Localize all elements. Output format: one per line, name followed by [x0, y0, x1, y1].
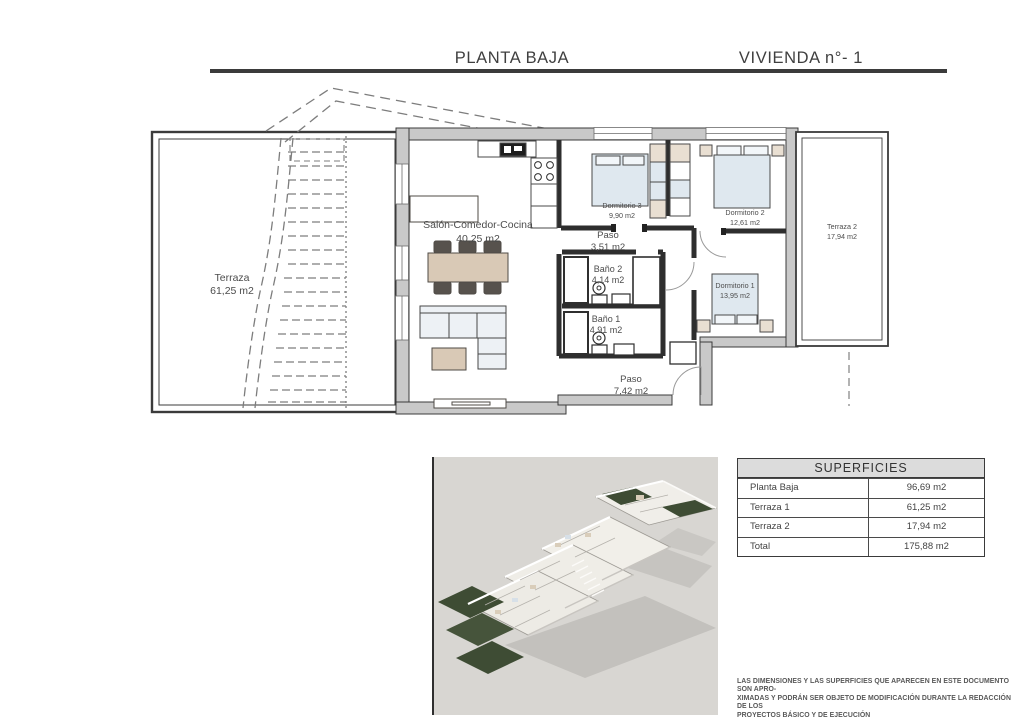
stove-icon	[531, 158, 557, 184]
bathroom-fixtures	[564, 257, 696, 364]
room-label-paso-2: Paso 7,42 m2	[614, 374, 648, 398]
bed-dormitorio-2	[670, 144, 784, 216]
room-name: Baño 2	[592, 264, 625, 275]
row-value: 61,25 m2	[869, 499, 984, 518]
disclaimer-line: PROYECTOS BÁSICO Y DE EJECUCIÓN	[737, 712, 1015, 720]
row-label: Total	[738, 538, 869, 557]
room-name: Paso	[591, 230, 625, 242]
room-area: 7,42 m2	[614, 386, 648, 398]
hall-closet	[670, 342, 696, 364]
superficies-table-title: SUPERFICIES	[738, 459, 984, 478]
dining-table	[428, 253, 508, 282]
disclaimer-line: XIMADAS Y PODRÁN SER OBJETO DE MODIFICAC…	[737, 695, 1015, 712]
room-name: Terraza	[210, 272, 254, 285]
kitchen-fixtures	[478, 141, 557, 228]
sink-bano-1	[614, 344, 634, 355]
row-value: 96,69 m2	[869, 479, 984, 498]
kitchen-sink-icon	[500, 143, 526, 156]
room-area: 9,90 m2	[602, 211, 641, 221]
disclaimer-text: LAS DIMENSIONES Y LAS SUPERFICIES QUE AP…	[737, 678, 1015, 720]
room-label-bano-1: Baño 1 4,91 m2	[590, 314, 623, 336]
room-label-salon: Salón-Comedor-Cocina 40,25 m2	[423, 219, 533, 246]
row-label: Planta Baja	[738, 479, 869, 498]
terraza-2-plan	[796, 132, 888, 406]
room-area: 61,25 m2	[210, 285, 254, 298]
room-label-terraza-1: Terraza 61,25 m2	[210, 272, 254, 298]
room-area: 12,61 m2	[725, 218, 764, 228]
table-row: Terraza 1 61,25 m2	[738, 498, 984, 518]
row-value: 175,88 m2	[869, 538, 984, 557]
room-label-dormitorio-3: Dormitorio 3 9,90 m2	[602, 201, 641, 220]
room-name: Dormitorio 3	[602, 201, 641, 211]
building-3d-render	[432, 457, 718, 715]
room-label-paso-1: Paso 3,51 m2	[591, 230, 625, 254]
sink-bano-2	[612, 294, 630, 304]
room-area: 17,94 m2	[827, 232, 857, 242]
row-label: Terraza 2	[738, 518, 869, 537]
table-row: Terraza 2 17,94 m2	[738, 517, 984, 537]
coffee-table	[432, 348, 466, 370]
room-area: 40,25 m2	[423, 233, 533, 247]
room-name: Salón-Comedor-Cocina	[423, 219, 533, 233]
superficies-table: SUPERFICIES Planta Baja 96,69 m2 Terraza…	[737, 458, 985, 557]
shower-bano-2	[564, 257, 588, 303]
room-area: 13,95 m2	[715, 291, 754, 301]
room-label-dormitorio-2: Dormitorio 2 12,61 m2	[725, 208, 764, 227]
table-row: Planta Baja 96,69 m2	[738, 478, 984, 498]
room-area: 3,51 m2	[591, 242, 625, 254]
room-label-bano-2: Baño 2 4,14 m2	[592, 264, 625, 286]
table-row: Total 175,88 m2	[738, 537, 984, 557]
room-name: Paso	[614, 374, 648, 386]
shower-bano-1	[564, 312, 588, 354]
room-name: Terraza 2	[827, 222, 857, 232]
room-name: Baño 1	[590, 314, 623, 325]
row-label: Terraza 1	[738, 499, 869, 518]
disclaimer-line: LAS DIMENSIONES Y LAS SUPERFICIES QUE AP…	[737, 678, 1015, 695]
room-label-terraza-2: Terraza 2 17,94 m2	[827, 222, 857, 241]
plan-sheet: PLANTA BAJA VIVIENDA n°- 1	[0, 0, 1024, 724]
room-area: 4,91 m2	[590, 325, 623, 336]
room-name: Dormitorio 2	[725, 208, 764, 218]
terraza-1-plan	[152, 132, 400, 412]
dining-set	[428, 241, 508, 294]
room-area: 4,14 m2	[592, 275, 625, 286]
row-value: 17,94 m2	[869, 518, 984, 537]
room-label-dormitorio-1: Dormitorio 1 13,95 m2	[715, 281, 754, 300]
floorplan-drawing	[0, 0, 1024, 724]
cabinet-bano-2	[633, 257, 660, 305]
room-name: Dormitorio 1	[715, 281, 754, 291]
